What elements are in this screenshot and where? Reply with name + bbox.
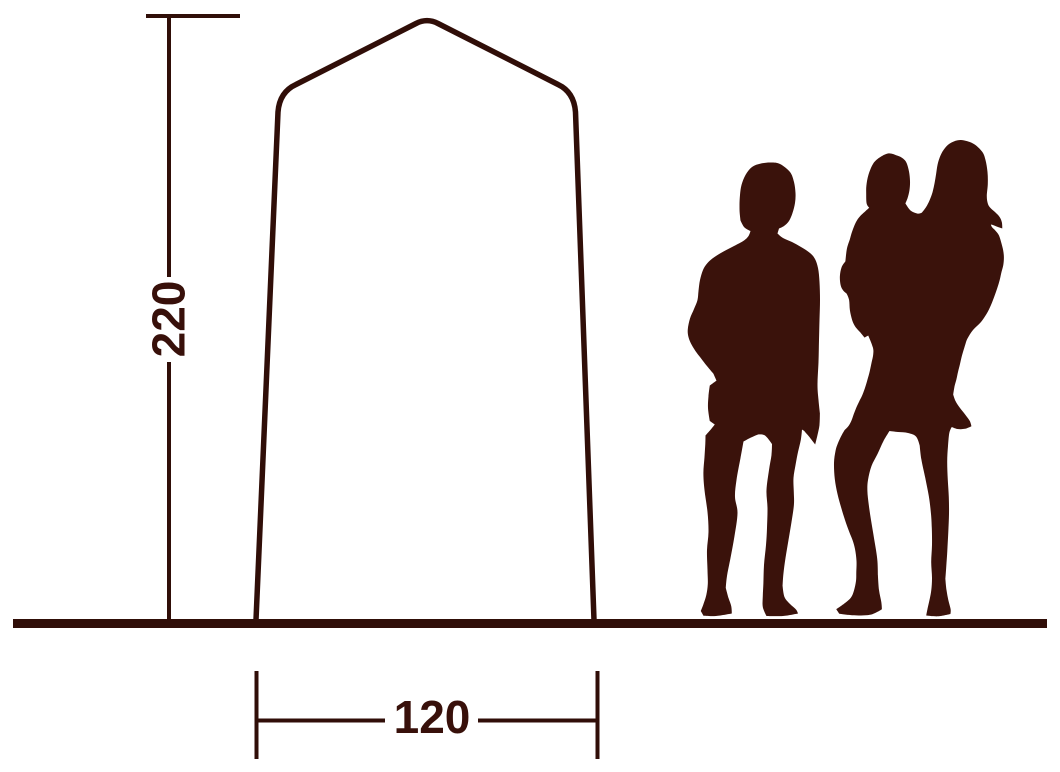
svg-text:220: 220 [143, 281, 195, 358]
svg-text:120: 120 [394, 691, 471, 743]
